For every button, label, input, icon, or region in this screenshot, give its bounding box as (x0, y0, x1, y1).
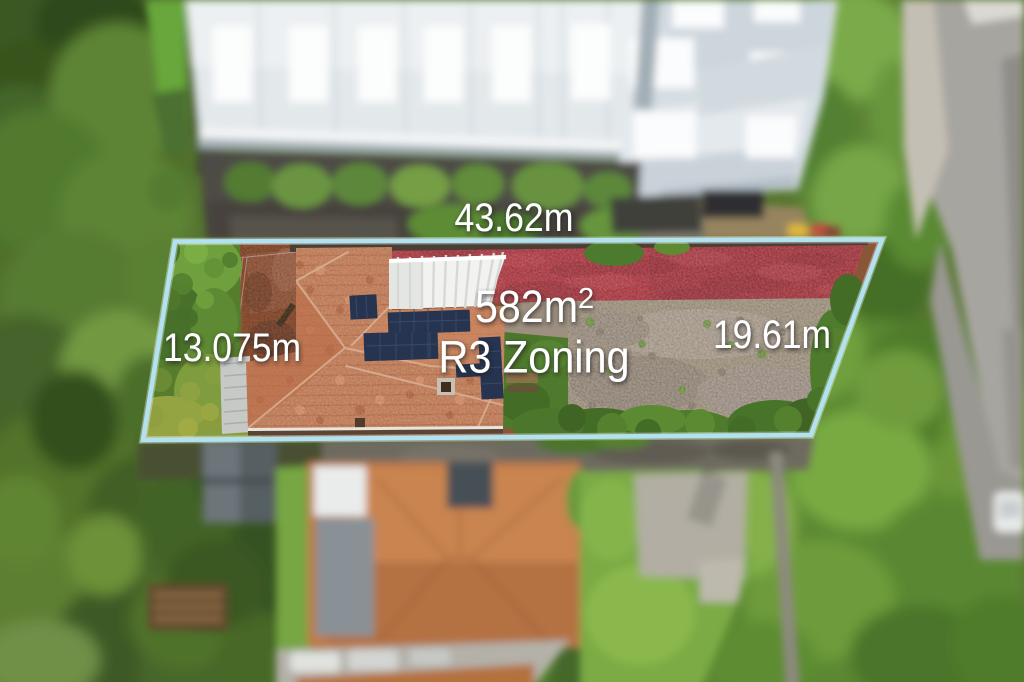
svg-text:13.075m: 13.075m (163, 326, 301, 370)
svg-text:2: 2 (578, 283, 594, 315)
svg-text:R3 Zoning: R3 Zoning (439, 332, 630, 383)
svg-text:43.62m: 43.62m (455, 196, 574, 240)
svg-text:19.61m: 19.61m (713, 313, 831, 357)
svg-text:582m: 582m (475, 281, 578, 332)
